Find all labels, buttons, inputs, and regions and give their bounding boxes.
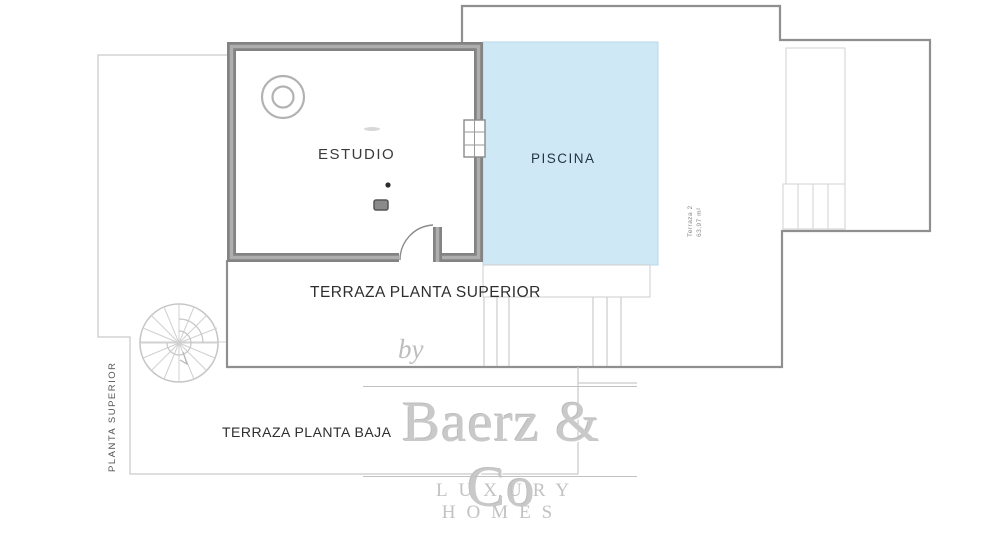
spiral-staircase	[140, 304, 218, 382]
wall-smudge	[364, 127, 380, 131]
watermark-tagline-text: LUXURY HOMES	[365, 480, 640, 524]
watermark-by-text: by	[398, 334, 423, 365]
floor-plan-page: ESTUDIO PISCINA TERRAZA PLANTA SUPERIOR …	[0, 0, 1000, 547]
terrace-area-value: 63,97 m²	[695, 205, 704, 237]
door-swing-arc	[400, 225, 433, 260]
stair-landing-outline	[786, 48, 845, 184]
terrace-area-annotation: Terraza 2 63,97 m²	[686, 205, 704, 237]
deck-support-right	[593, 297, 621, 366]
watermark-bottom-rule	[363, 476, 637, 477]
straight-stair-treads	[798, 184, 828, 229]
straight-stair-outline	[783, 184, 845, 229]
watermark-top-rule	[363, 386, 637, 387]
studio-room-label: ESTUDIO	[318, 146, 395, 163]
deck-support-left	[484, 297, 509, 366]
floor-dot-symbol	[385, 182, 390, 187]
ceiling-light-symbol	[262, 76, 304, 118]
window	[464, 120, 485, 157]
upper-terrace-label: TERRAZA PLANTA SUPERIOR	[310, 284, 541, 302]
pool-room-label: PISCINA	[531, 151, 596, 166]
terrace-area-name: Terraza 2	[686, 205, 695, 237]
floor-name-vertical-label: PLANTA SUPERIOR	[107, 362, 118, 473]
floor-socket-symbol	[374, 200, 388, 210]
